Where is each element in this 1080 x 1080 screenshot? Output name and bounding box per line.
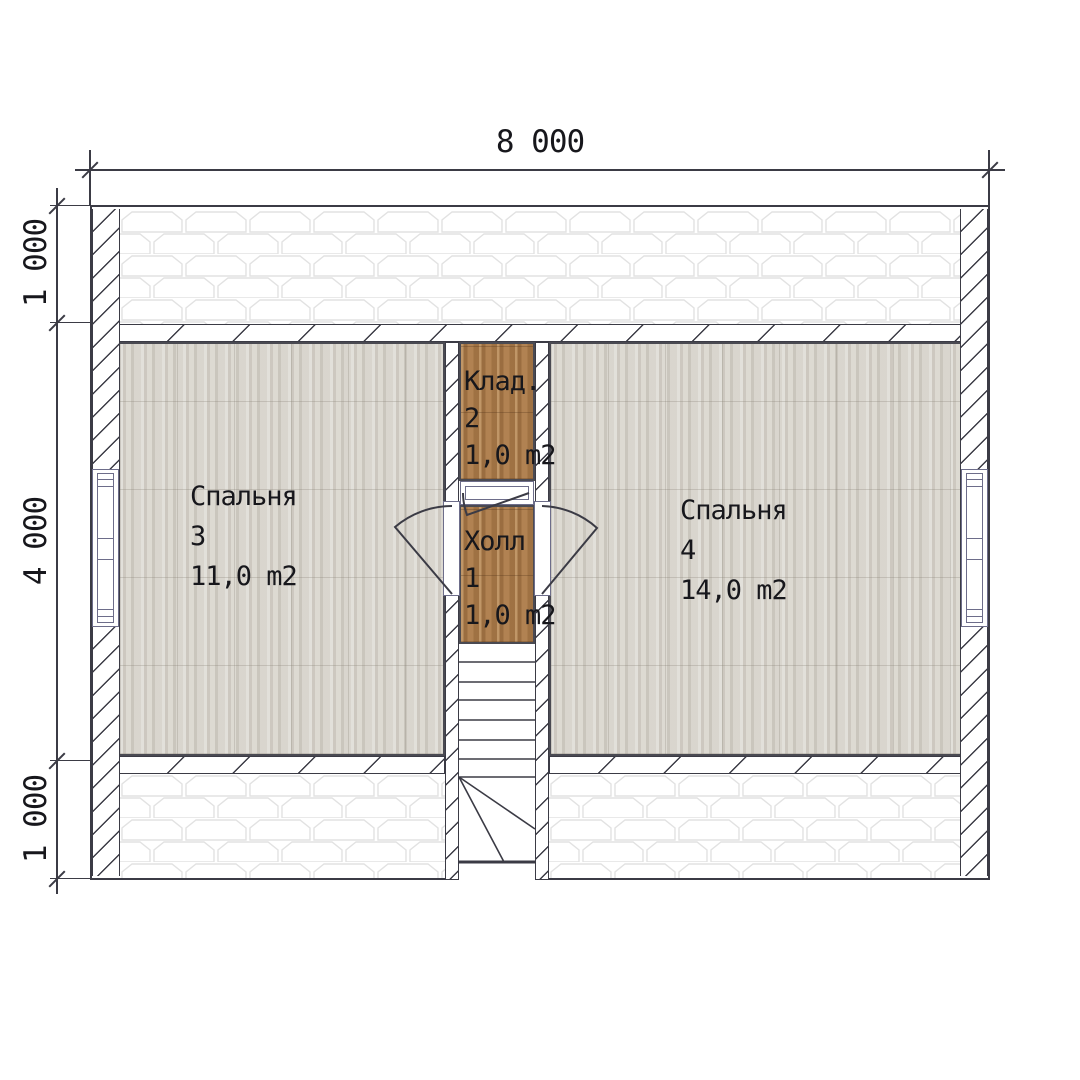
- bedroom3-label: Спальня 3 11,0 m2: [190, 477, 297, 597]
- room-area: 11,0 m2: [190, 557, 297, 597]
- room-name: Клад.: [464, 363, 556, 400]
- window-right: [961, 469, 988, 627]
- closet-label: Клад. 2 1,0 m2: [464, 363, 556, 474]
- window-mullion: [97, 609, 114, 617]
- room-number: 2: [464, 400, 556, 437]
- room-number: 3: [190, 517, 297, 557]
- knee-wall-top: [118, 324, 966, 342]
- floor-plan: Спальня 3 11,0 m2 Клад. 2 1,0 m2 Холл 1 …: [90, 205, 990, 880]
- knee-wall-bottom-right: [549, 756, 964, 774]
- roof-band-top: [120, 210, 964, 324]
- hall-label: Холл 1 1,0 m2: [464, 523, 556, 634]
- window-mullion: [97, 479, 114, 487]
- floor-plan-canvas: 8 000 1 000 4 000 1 000: [0, 0, 1080, 1080]
- dimension-top-ext-right: [988, 150, 990, 206]
- bedroom3-door-leaf: [443, 501, 460, 596]
- stair-wall-left: [445, 342, 459, 880]
- window-mullion: [966, 479, 983, 487]
- window-mullion: [966, 538, 983, 560]
- window-mullion: [97, 538, 114, 560]
- dimension-left-middle-label: 4 000: [18, 497, 54, 585]
- window-mullion: [966, 609, 983, 617]
- room-number: 1: [464, 560, 556, 597]
- room-area: 1,0 m2: [464, 597, 556, 634]
- dimension-left-upper-label: 1 000: [18, 219, 54, 307]
- room-area: 14,0 m2: [680, 571, 787, 611]
- closet-door-leaf: [465, 486, 529, 500]
- knee-wall-bottom-left: [118, 756, 445, 774]
- dimension-top-label: 8 000: [90, 124, 990, 160]
- dimension-left-line: [56, 188, 58, 894]
- dimension-top-line: [75, 169, 1005, 171]
- window-left: [92, 469, 119, 627]
- dimension-left-lower-label: 1 000: [18, 775, 54, 863]
- roof-band-bottom-left: [120, 774, 445, 878]
- closet-door: [460, 481, 534, 505]
- room-area: 1,0 m2: [464, 437, 556, 474]
- roof-band-bottom-right: [549, 774, 964, 878]
- room-name: Спальня: [680, 491, 787, 531]
- bedroom4-label: Спальня 4 14,0 m2: [680, 491, 787, 611]
- dimension-top-ext-left: [89, 150, 91, 206]
- stairwell: [459, 644, 535, 880]
- room-number: 4: [680, 531, 787, 571]
- room-name: Холл: [464, 523, 556, 560]
- room-name: Спальня: [190, 477, 297, 517]
